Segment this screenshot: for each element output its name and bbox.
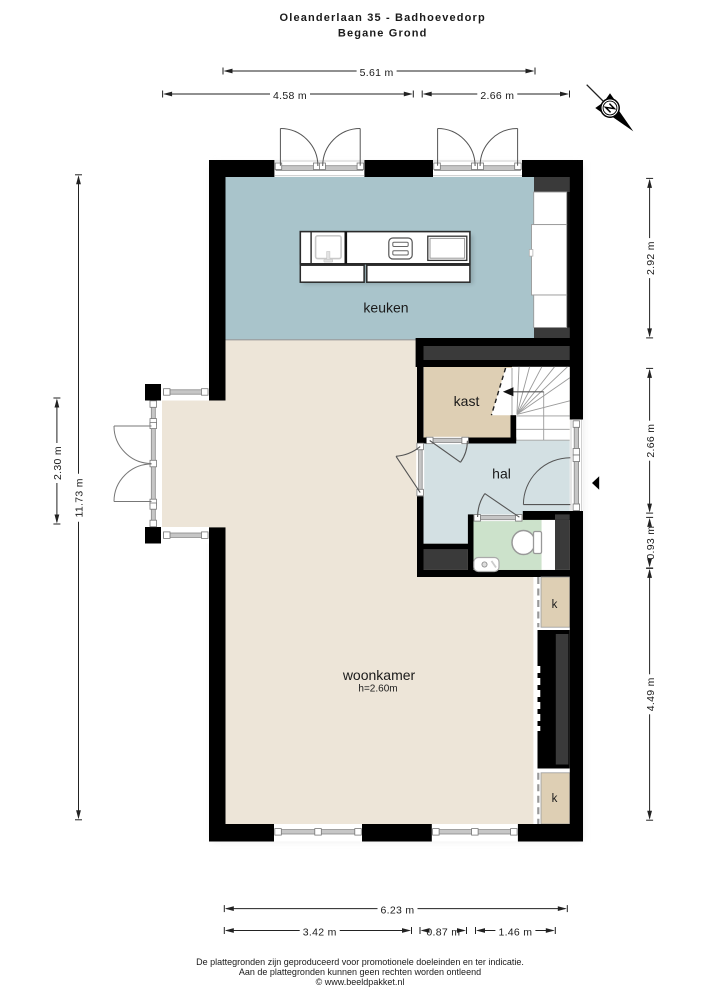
svg-text:hal: hal [492, 466, 511, 482]
svg-text:k: k [552, 793, 558, 805]
svg-text:De plattegronden zijn geproduc: De plattegronden zijn geproduceerd voor … [196, 957, 524, 967]
svg-text:woonkamer: woonkamer [342, 667, 416, 683]
svg-text:Aan de plattegronden kunnen ge: Aan de plattegronden kunnen geen rechten… [239, 967, 481, 977]
svg-text:2.66 m: 2.66 m [645, 424, 657, 458]
svg-text:© www.beeldpakket.nl: © www.beeldpakket.nl [316, 977, 405, 987]
svg-text:5.61 m: 5.61 m [360, 67, 394, 79]
svg-text:4.58 m: 4.58 m [273, 90, 307, 102]
svg-text:2.30 m: 2.30 m [52, 446, 64, 480]
svg-text:Oleanderlaan 35 - Badhoevedorp: Oleanderlaan 35 - Badhoevedorp [280, 12, 486, 24]
svg-text:11.73 m: 11.73 m [74, 478, 86, 517]
svg-text:0.87 m: 0.87 m [426, 926, 460, 938]
svg-text:Begane Grond: Begane Grond [338, 28, 428, 40]
svg-text:3.42 m: 3.42 m [303, 926, 337, 938]
svg-text:2.92 m: 2.92 m [645, 241, 657, 275]
svg-text:6.23 m: 6.23 m [381, 905, 415, 917]
svg-text:1.46 m: 1.46 m [498, 926, 532, 938]
svg-text:k: k [552, 599, 558, 611]
svg-text:kast: kast [454, 393, 480, 409]
svg-text:4.49 m: 4.49 m [645, 677, 657, 711]
svg-text:2.66 m: 2.66 m [480, 90, 514, 102]
svg-text:keuken: keuken [363, 300, 408, 316]
svg-text:h=2.60m: h=2.60m [358, 684, 397, 695]
svg-text:0.93 m: 0.93 m [645, 526, 657, 560]
